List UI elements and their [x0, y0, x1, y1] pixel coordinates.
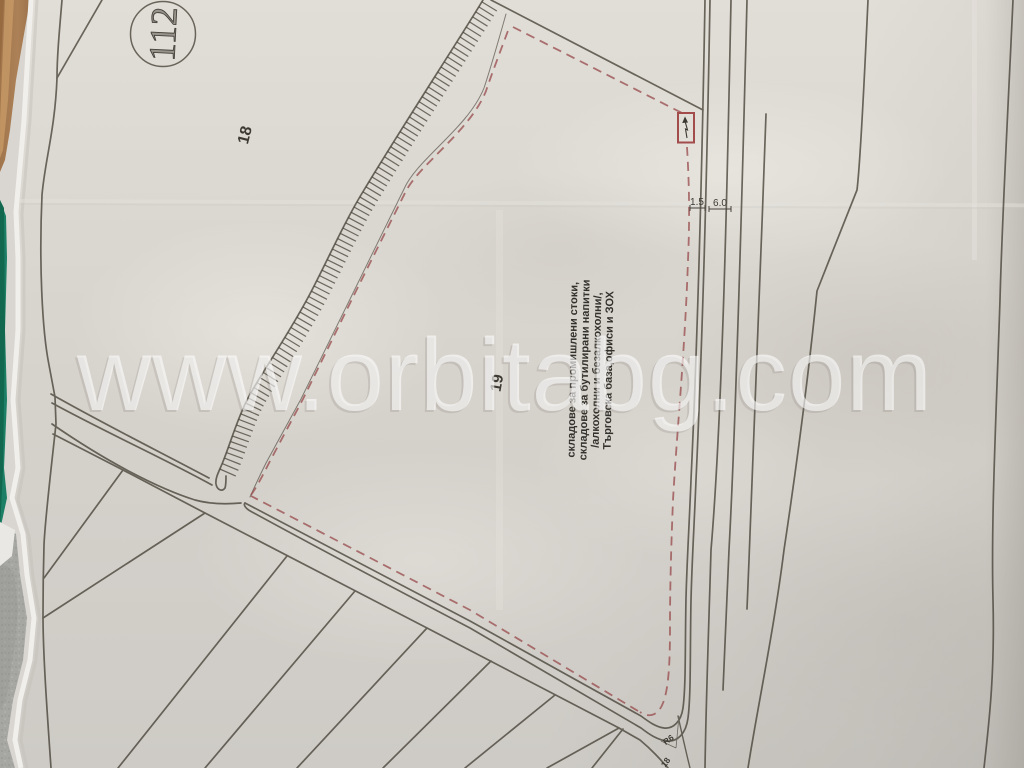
- svg-text:112: 112: [142, 6, 186, 62]
- svg-text:1.5: 1.5: [690, 197, 704, 208]
- svg-text:www.orbitabg.com: www.orbitabg.com: [76, 317, 933, 432]
- svg-text:6.0: 6.0: [713, 198, 727, 209]
